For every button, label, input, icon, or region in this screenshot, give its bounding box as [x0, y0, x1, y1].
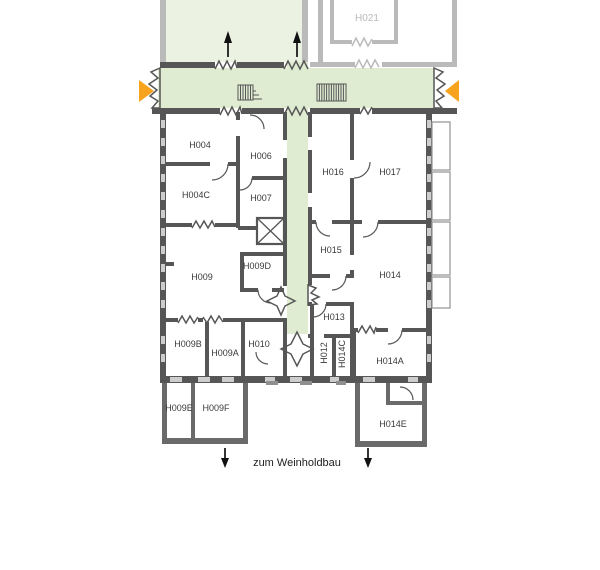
exit-arrow-left-icon[interactable] [445, 80, 459, 102]
room-label-H004: H004 [189, 140, 211, 150]
room-label-H015: H015 [320, 245, 342, 255]
room-label-H016: H016 [322, 167, 344, 177]
room-label-H013: H013 [323, 312, 345, 322]
elevator-icon [257, 218, 284, 244]
entrance-hall [166, 0, 302, 62]
annex-right [355, 383, 427, 447]
room-label-H009B: H009B [174, 339, 202, 349]
room-label-H006: H006 [250, 151, 272, 161]
room-label-H010: H010 [248, 339, 270, 349]
floor-plan: H021 H004 H006 H004C H007 H016 H017 H009… [0, 0, 600, 570]
room-label-H009E: H009E [165, 403, 193, 413]
annex-left [162, 383, 248, 444]
room-label-H021: H021 [355, 13, 379, 24]
room-label-H004C: H004C [182, 190, 211, 200]
down-arrow-icon[interactable] [364, 448, 372, 468]
exit-destination-label: zum Weinholdbau [253, 457, 341, 469]
room-label-H009: H009 [191, 272, 213, 282]
room-label-H014E: H014E [379, 419, 407, 429]
room-label-H014: H014 [379, 270, 401, 280]
room-label-H014A: H014A [376, 356, 404, 366]
down-arrow-icon[interactable] [221, 448, 229, 468]
corridor-end-right [434, 68, 445, 108]
room-label-H014C: H014C [337, 339, 347, 368]
exit-arrow-right-icon[interactable] [139, 80, 154, 102]
room-label-H012: H012 [319, 342, 329, 364]
room-label-H009D: H009D [243, 261, 272, 271]
room-label-H017: H017 [379, 167, 401, 177]
room-label-H009A: H009A [211, 348, 239, 358]
floor-plan-page: H021 H004 H006 H004C H007 H016 H017 H009… [0, 0, 600, 570]
room-label-H007: H007 [250, 193, 272, 203]
room-label-H009F: H009F [202, 403, 230, 413]
central-corridor [287, 62, 308, 334]
balconies [432, 122, 450, 308]
